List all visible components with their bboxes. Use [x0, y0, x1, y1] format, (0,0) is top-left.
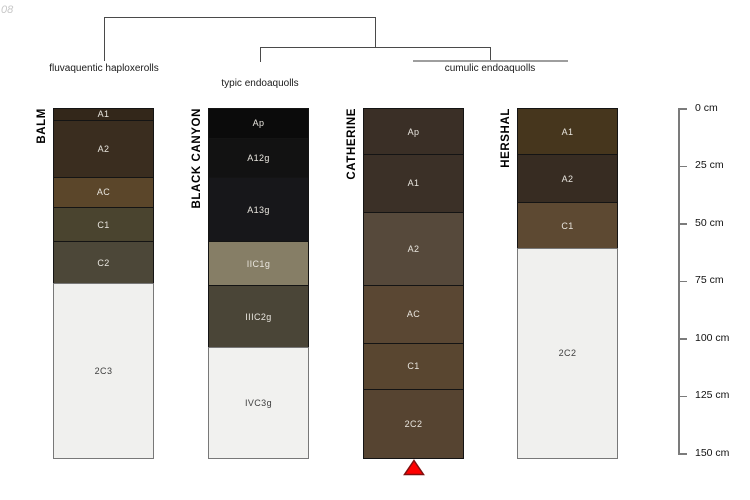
horizon-label: AC [97, 187, 110, 197]
soil-layer-catherine-a2: A2 [363, 212, 464, 287]
horizon-label: A12g [247, 153, 270, 163]
series-label-balm: BALM [36, 108, 48, 144]
soil-profile-figure: 08 fluvaquentic haploxerolls typic endoa… [0, 0, 750, 500]
horizon-label: A1 [562, 127, 574, 137]
soil-layer-hershal-a2: A2 [517, 154, 618, 203]
horizon-label: C1 [561, 221, 573, 231]
dendrogram-link-line [104, 17, 105, 61]
soil-layer-black-canyon-ivc3g: IVC3g [208, 347, 309, 458]
depth-tick-label: 25 cm [695, 159, 724, 171]
group-label-typic-endoaquolls: typic endoaquolls [221, 78, 298, 89]
watermark-text: 08 [1, 4, 13, 16]
soil-layer-hershal-2c2: 2C2 [517, 248, 618, 458]
soil-layer-catherine-c1: C1 [363, 343, 464, 390]
soil-layer-black-canyon-iic1g: IIC1g [208, 241, 309, 286]
soil-layer-balm-a2: A2 [53, 120, 154, 179]
dendrogram-cluster-line [413, 60, 568, 62]
red-triangle-marker [402, 459, 426, 477]
depth-tick [678, 396, 687, 398]
dendrogram-link-line [375, 17, 376, 48]
horizon-label: 2C2 [559, 348, 577, 358]
horizon-label: C1 [97, 220, 109, 230]
depth-tick [678, 338, 687, 340]
horizon-label: IIIC2g [245, 312, 271, 322]
dendrogram-link-line [260, 47, 491, 48]
horizon-label: A2 [408, 244, 420, 254]
horizon-label: 2C2 [405, 419, 423, 429]
horizon-label: IIC1g [247, 259, 271, 269]
soil-layer-black-canyon-ap: Ap [208, 108, 309, 139]
series-label-catherine: CATHERINE [346, 108, 358, 180]
horizon-label: A2 [98, 144, 110, 154]
dendrogram-link-line [104, 17, 376, 18]
horizon-label: 2C3 [95, 366, 113, 376]
soil-layer-black-canyon-iiic2g: IIIC2g [208, 285, 309, 348]
soil-layer-hershal-a1: A1 [517, 108, 618, 155]
depth-tick [678, 281, 687, 283]
depth-tick-label: 125 cm [695, 389, 729, 401]
soil-layer-balm-c1: C1 [53, 207, 154, 243]
horizon-label: A13g [247, 205, 270, 215]
dendrogram-link-line [490, 47, 491, 61]
depth-tick-label: 100 cm [695, 332, 729, 344]
soil-layer-hershal-c1: C1 [517, 202, 618, 249]
soil-layer-balm-ac: AC [53, 177, 154, 208]
depth-tick-label: 50 cm [695, 217, 724, 229]
horizon-label: IVC3g [245, 398, 272, 408]
soil-layer-black-canyon-a13g: A13g [208, 177, 309, 242]
horizon-label: Ap [408, 127, 420, 137]
depth-tick-label: 150 cm [695, 447, 729, 459]
depth-tick [678, 166, 687, 168]
soil-layer-balm-c2: C2 [53, 241, 154, 283]
horizon-label: C1 [407, 361, 419, 371]
depth-tick [678, 108, 687, 110]
soil-layer-black-canyon-a12g: A12g [208, 138, 309, 178]
horizon-label: A2 [562, 174, 574, 184]
horizon-label: A1 [408, 178, 420, 188]
soil-layer-catherine-ac: AC [363, 285, 464, 344]
series-label-black-canyon: BLACK CANYON [191, 108, 203, 208]
horizon-label: A1 [98, 109, 110, 119]
soil-layer-catherine-ap: Ap [363, 108, 464, 155]
horizon-label: Ap [253, 118, 265, 128]
horizon-label: AC [407, 309, 420, 319]
depth-tick-label: 75 cm [695, 274, 724, 286]
soil-layer-catherine-2c2: 2C2 [363, 389, 464, 459]
soil-layer-catherine-a1: A1 [363, 154, 464, 213]
group-label-fluvaquentic-haploxerolls: fluvaquentic haploxerolls [49, 63, 159, 74]
depth-tick [678, 223, 687, 225]
series-label-hershal: HERSHAL [500, 108, 512, 168]
soil-layer-balm-2c3: 2C3 [53, 283, 154, 459]
horizon-label: C2 [97, 258, 109, 268]
dendrogram-link-line [260, 47, 261, 62]
group-label-cumulic-endoaquolls: cumulic endoaquolls [445, 63, 536, 74]
depth-tick-label: 0 cm [695, 102, 718, 114]
depth-tick [678, 453, 687, 455]
